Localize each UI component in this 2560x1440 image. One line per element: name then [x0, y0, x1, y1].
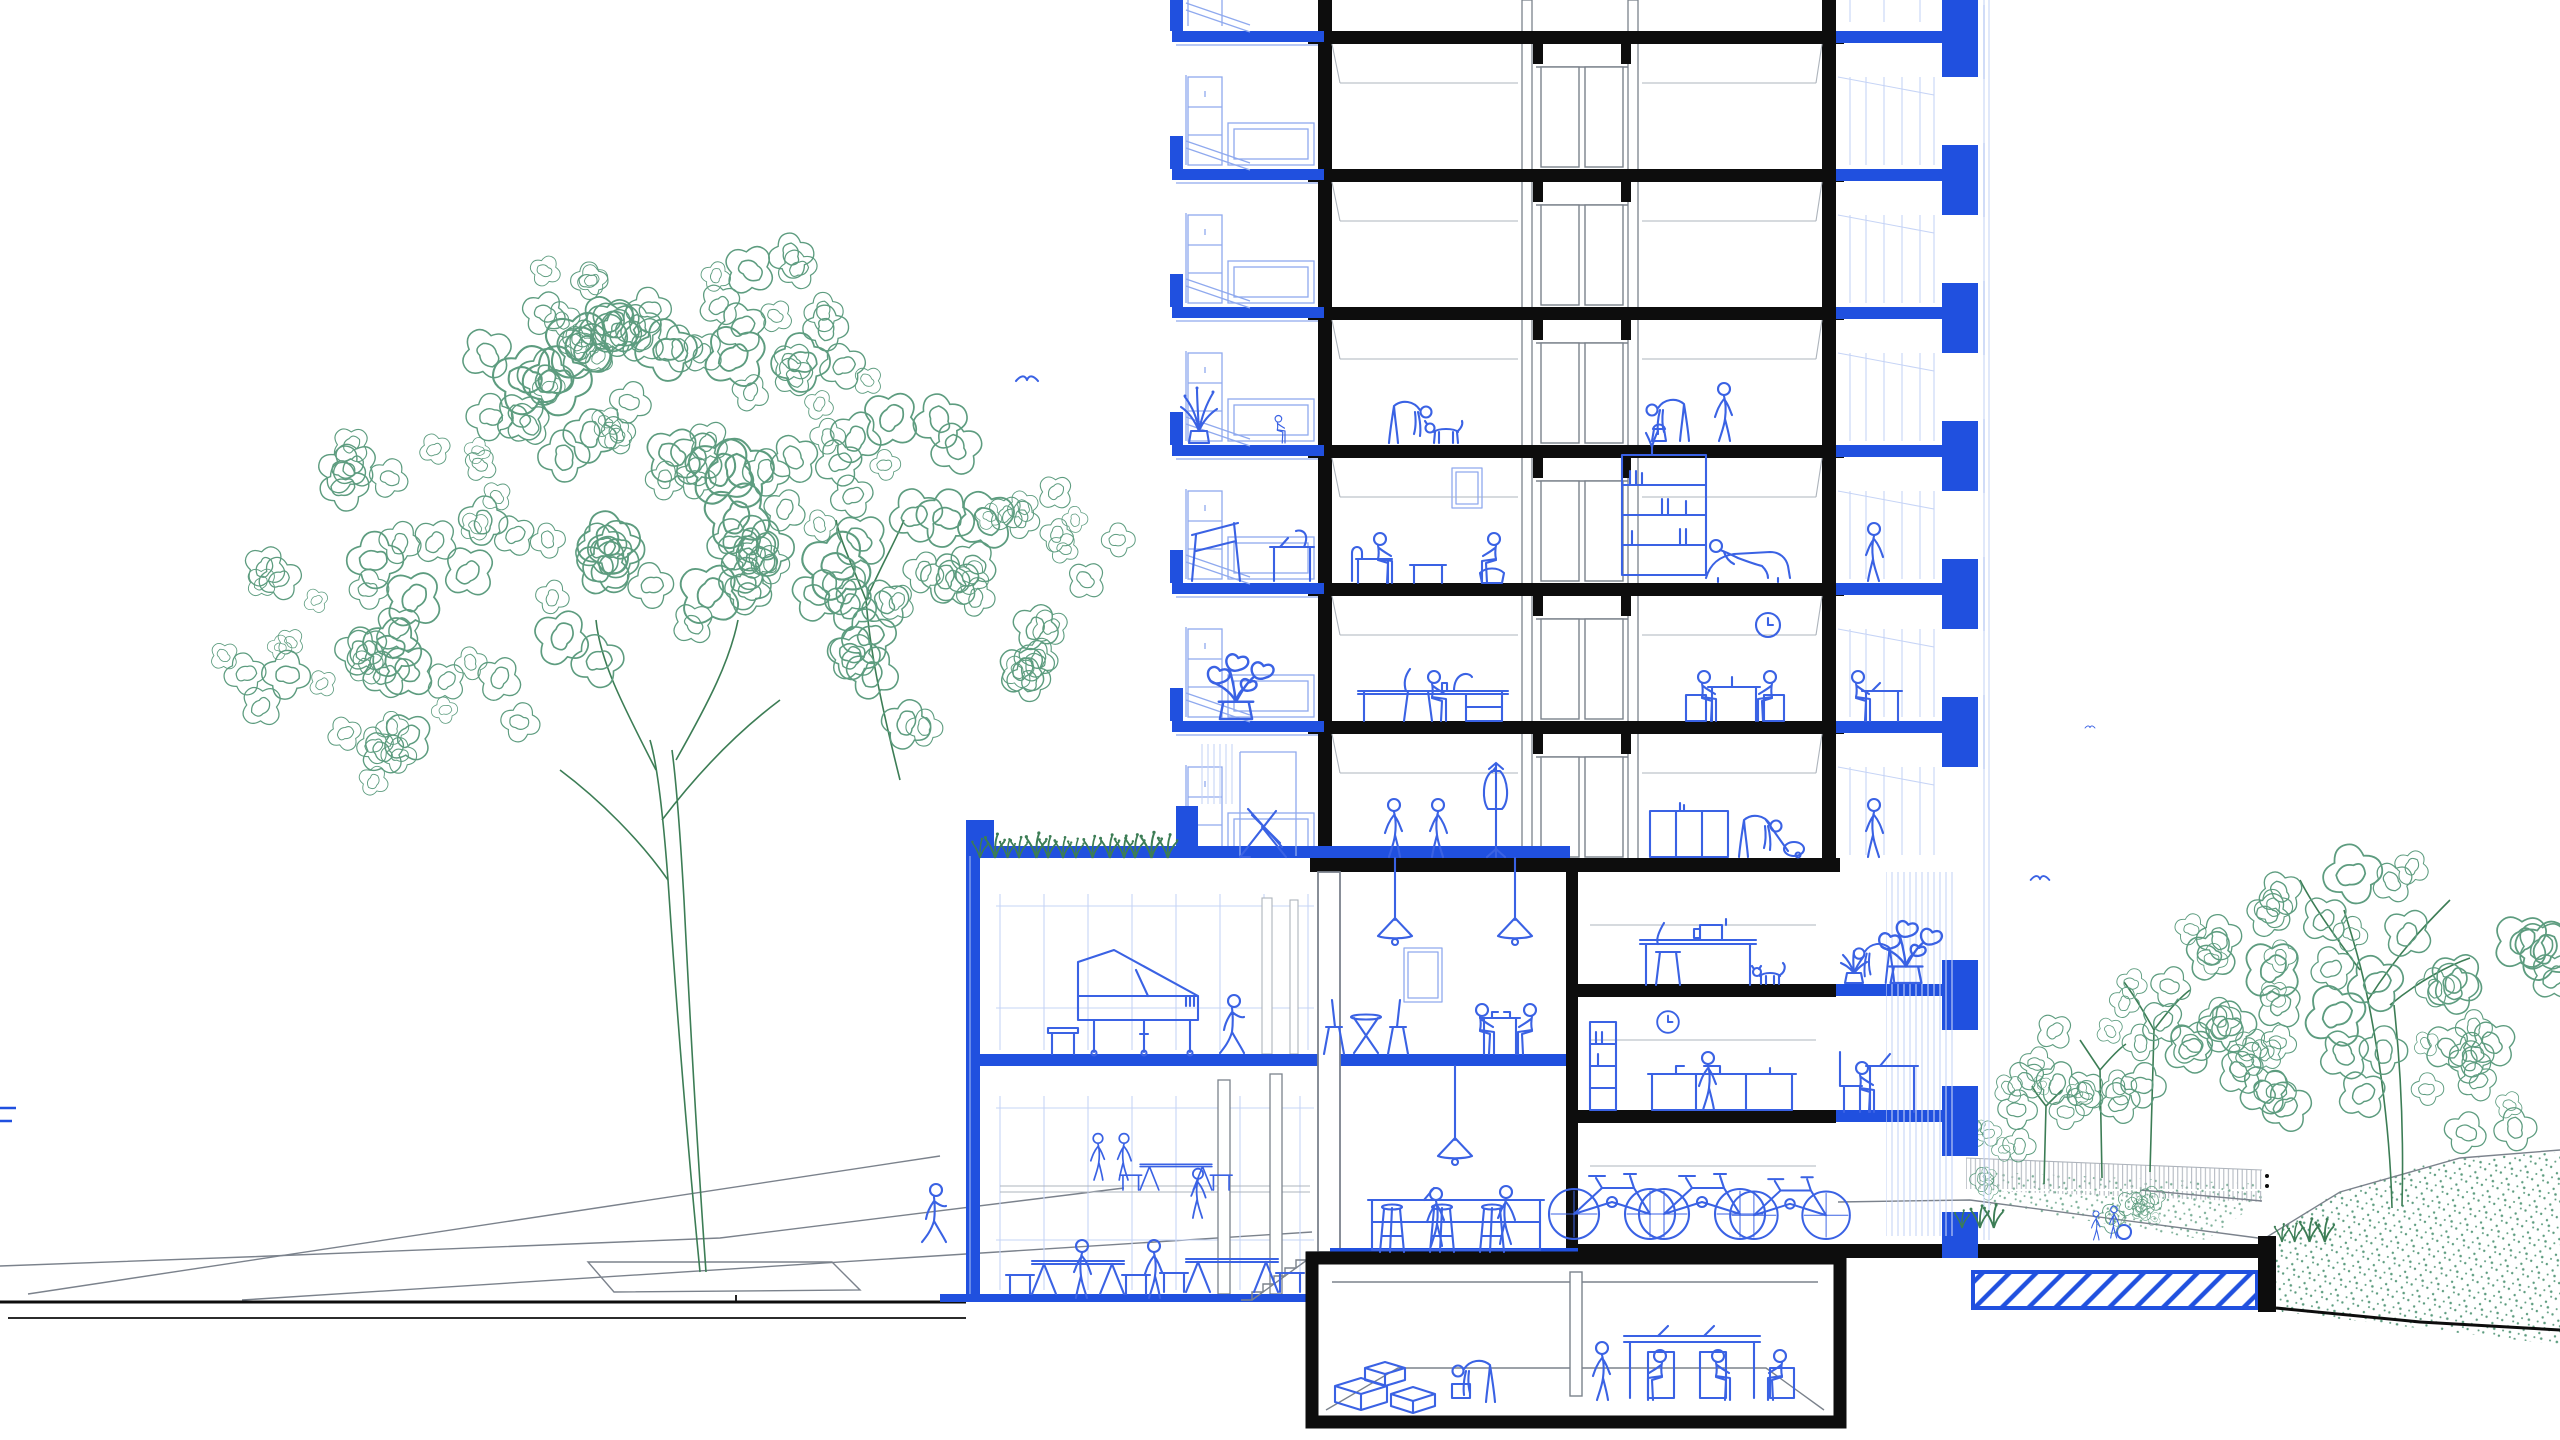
- foliage-blob: [468, 648, 530, 710]
- bird: [1016, 376, 1038, 381]
- facade-edge-lines: [1984, 0, 1989, 1240]
- foliage-blob: [2028, 1006, 2080, 1058]
- foliage-blob: [2490, 1086, 2527, 1123]
- sewing-desk: [1640, 919, 1756, 985]
- left-street-tree: [204, 229, 1136, 1272]
- hatched-slab: [1973, 1272, 2257, 1308]
- foliage-blob: [2016, 1043, 2058, 1085]
- wall-frame-small: [1452, 468, 1482, 508]
- foliage-blob: [808, 432, 869, 493]
- podium-roof-slab: [966, 846, 1570, 858]
- foliage-blob: [2171, 910, 2211, 950]
- foliage-blob: [2131, 991, 2194, 1054]
- handshake-b: [1118, 1134, 1132, 1180]
- foliage-blob: [313, 440, 372, 499]
- foliage-blob: [2421, 957, 2485, 1021]
- garden-slab: [1836, 1244, 2260, 1258]
- foliage-blob: [822, 502, 900, 580]
- foliage-blob: [2339, 947, 2413, 1021]
- foliage-blob: [404, 510, 467, 573]
- foliage-blob: [2113, 965, 2151, 1003]
- foliage-blob: [850, 379, 931, 460]
- foliage-blob: [803, 291, 845, 333]
- foliage-blob: [349, 569, 390, 610]
- foliage-blob: [271, 622, 310, 661]
- foliage-blob: [2176, 921, 2245, 990]
- foliage-blob: [905, 708, 944, 747]
- foliage-blob: [2438, 1106, 2492, 1160]
- foliage-blob: [2491, 1105, 2540, 1154]
- vacuum-cleaner: [1766, 820, 1804, 858]
- foliage-blob: [1059, 553, 1114, 608]
- foliage-blob: [352, 722, 414, 784]
- person-cooking: [1699, 1052, 1716, 1110]
- foliage-blob: [2460, 1011, 2526, 1077]
- foliage-blob: [299, 584, 332, 617]
- foliage-blob: [2119, 1060, 2169, 1110]
- foliage-blob: [852, 571, 918, 637]
- terrace-louver: [1200, 744, 1234, 804]
- handshake-a: [1091, 1134, 1105, 1180]
- cafe-partition: [1318, 872, 1340, 1252]
- foliage-blob: [813, 337, 872, 396]
- person-vacuuming: [1739, 816, 1782, 857]
- terrace-parapet: [1176, 806, 1198, 858]
- foliage-blob: [2520, 941, 2560, 1011]
- right-tree-trunks: [2032, 880, 2470, 1208]
- foliage-blob: [496, 698, 544, 746]
- foliage-blob: [528, 520, 569, 561]
- street-left: [0, 1108, 1312, 1318]
- foliage-blob: [2057, 1062, 2112, 1117]
- woman-at-window: [1866, 799, 1883, 857]
- bicycle-2: [1639, 1174, 1765, 1239]
- foliage-blob: [2316, 838, 2389, 911]
- foliage-blob: [322, 711, 367, 756]
- left-tree-foliage: [204, 229, 1136, 801]
- top-partial-storey: [1170, 0, 1978, 26]
- foliage-blob: [1002, 485, 1044, 527]
- foliage-blob: [524, 600, 600, 676]
- foliage-blob: [800, 506, 840, 546]
- foliage-blob: [464, 392, 514, 442]
- foliage-blob: [353, 760, 394, 801]
- foliage-blob: [714, 234, 785, 305]
- foliage-blob: [996, 650, 1040, 694]
- foliage-blob: [259, 648, 313, 702]
- foliage-blob: [922, 415, 990, 483]
- foliage-blob: [363, 452, 414, 503]
- foliage-blob: [232, 676, 292, 736]
- foliage-blob: [2411, 1072, 2445, 1106]
- foliage-blob: [1061, 506, 1088, 533]
- sideboard: [1650, 803, 1728, 857]
- foliage-blob: [691, 313, 779, 401]
- foliage-blob: [824, 468, 880, 524]
- wall-clock: [1756, 613, 1780, 637]
- foliage-blob: [726, 368, 775, 417]
- foliage-blob: [346, 531, 405, 590]
- person-on-phone: [1715, 383, 1732, 441]
- foliage-blob: [1101, 522, 1136, 557]
- foliage-blob: [451, 318, 523, 390]
- hall-floor: [940, 1294, 1318, 1302]
- woman-reading-loggia: [1866, 523, 1883, 581]
- foliage-blob: [809, 418, 846, 455]
- ball: [2117, 1225, 2131, 1239]
- foliage-blob: [1030, 467, 1080, 517]
- building-section-drawing: [0, 0, 2560, 1440]
- kitchen-unit: [1590, 1022, 1796, 1110]
- loggia-desk: [1862, 683, 1902, 721]
- tower-base-slab: [1310, 858, 1840, 872]
- cat: [1752, 963, 1785, 984]
- foliage-blob: [2304, 940, 2361, 997]
- foliage-blob: [2250, 863, 2311, 924]
- bar-bike-wall: [1566, 872, 1578, 1250]
- bar-stool-1: [1380, 1205, 1404, 1253]
- foliage-blob: [1996, 1088, 2039, 1131]
- bird: [2085, 726, 2095, 728]
- tree-pit: [588, 1262, 860, 1292]
- kitchen-clock: [1657, 1011, 1679, 1033]
- foliage-blob: [847, 360, 889, 402]
- bar-pendant: [1438, 1066, 1472, 1165]
- foliage-blob: [2358, 1025, 2409, 1076]
- bar-counter: [1368, 1188, 1544, 1250]
- walking-woman-piano-room: [1220, 995, 1244, 1053]
- foliage-blob: [432, 535, 506, 609]
- architectural-section-canvas: [0, 0, 2560, 1440]
- left-tree-trunk: [560, 520, 904, 1272]
- bird: [2031, 876, 2050, 880]
- piano-floor-slab: [980, 1054, 1568, 1066]
- foliage-blob: [2413, 966, 2456, 1009]
- foliage-blob: [692, 470, 783, 561]
- drafting-table: [1192, 523, 1314, 581]
- bicycle-3: [1730, 1177, 1850, 1239]
- foliage-blob: [418, 653, 475, 710]
- foliage-blob: [414, 428, 456, 470]
- foliage-blob: [2253, 1070, 2297, 1114]
- podium-left-wall: [966, 846, 980, 1302]
- foliage-blob: [697, 258, 734, 295]
- child-sitting: [1275, 416, 1285, 444]
- cafe-guest-right: [1518, 1004, 1536, 1054]
- foliage-blob: [525, 250, 567, 292]
- foliage-blob: [971, 499, 1005, 533]
- person-loggia-desk: [1852, 671, 1870, 721]
- foliage-blob: [2229, 927, 2314, 1012]
- foliage-blob: [429, 695, 459, 725]
- foliage-blob: [625, 560, 677, 612]
- floor-7: [1170, 0, 1984, 167]
- person-sitting-right: [1482, 533, 1500, 583]
- foliage-blob: [868, 448, 902, 482]
- dog: [1425, 421, 1462, 443]
- stipple-ground: [2262, 1152, 2560, 1345]
- mirror-frame: [1404, 948, 1442, 1002]
- foliage-blob: [2291, 886, 2358, 953]
- foliage-blob: [372, 558, 455, 641]
- piano-room-columns: [1262, 898, 1298, 1054]
- chaise: [1706, 552, 1790, 582]
- person-hall-b: [1145, 1240, 1162, 1298]
- foliage-blob: [2373, 899, 2442, 968]
- foliage-blob: [665, 550, 754, 639]
- foliage-blob: [566, 629, 630, 693]
- foliage-blob: [953, 574, 998, 619]
- coat-stand: [1484, 763, 1507, 857]
- foliage-blob: [570, 262, 608, 300]
